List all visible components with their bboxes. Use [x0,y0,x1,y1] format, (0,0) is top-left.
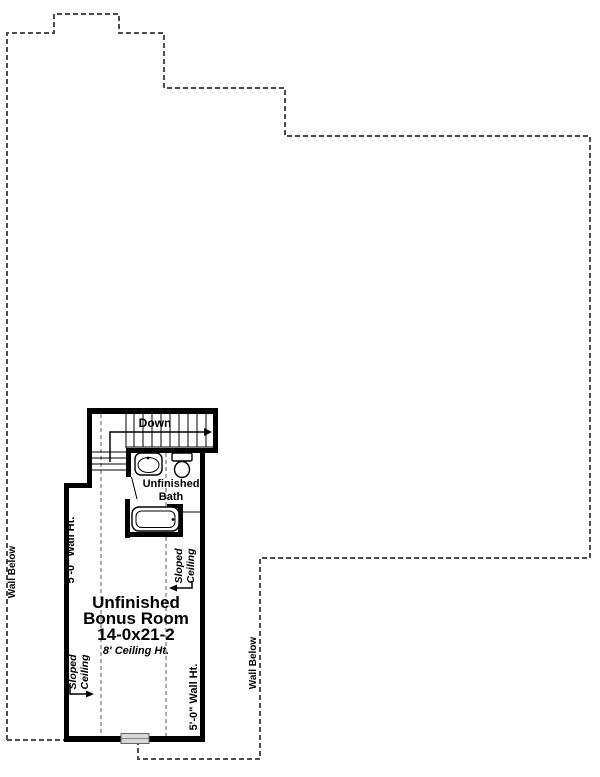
bath-label-line2: Bath [131,491,211,504]
sloped-ceiling-right-line2: Ceiling [185,544,197,588]
bath-room-label: Unfinished Bath [131,478,211,503]
sloped-ceiling-label-right: Sloped Ceiling [173,544,199,588]
bathtub-fixture [132,507,179,531]
bath-label-line1: Unfinished [131,478,211,491]
bonus-room-label: Unfinished Bonus Room 14-0x21-2 8' Ceili… [61,595,211,658]
sloped-ceiling-right-line1: Sloped [173,544,185,588]
bonus-room-dimensions: 14-0x21-2 [61,627,211,643]
stairs-down-label: Down [115,417,195,432]
sink-fixture [135,453,162,475]
wall-height-label-left: 5'-0" Wall Ht. [66,515,80,585]
sloped-ceiling-label-left: Sloped Ceiling [67,650,93,694]
wall-height-label-right: 5'-0" Wall Ht. [189,662,203,732]
window [121,734,149,744]
toilet-fixture [172,453,192,478]
sloped-ceiling-left-line2: Ceiling [79,650,91,694]
floor-plan: Down Unfinished Bath Unfinished Bonus Ro… [0,0,600,777]
wall-below-label-right: Wall Below [249,635,261,691]
wall-below-label-left: Wall Below [8,544,20,600]
sloped-ceiling-left-line1: Sloped [67,650,79,694]
